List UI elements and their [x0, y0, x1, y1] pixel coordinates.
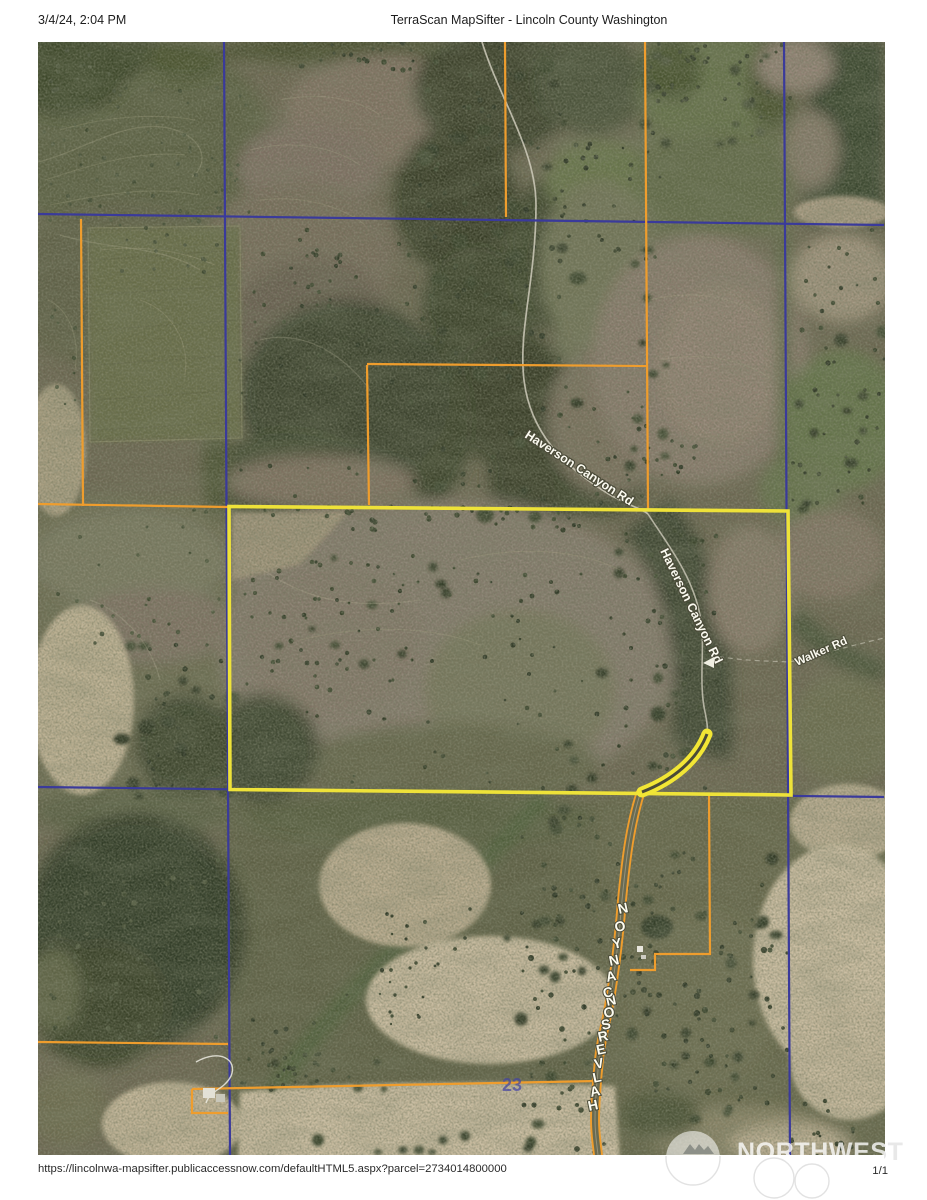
- svg-text:1/1: 1/1: [872, 1165, 888, 1177]
- svg-text:3/4/24, 2:04 PM: 3/4/24, 2:04 PM: [38, 13, 126, 27]
- svg-text:https://lincolnwa-mapsifter.pu: https://lincolnwa-mapsifter.publicaccess…: [38, 1163, 507, 1175]
- svg-text:TerraScan MapSifter - Lincoln: TerraScan MapSifter - Lincoln County Was…: [391, 13, 668, 27]
- svg-text:23: 23: [502, 1075, 522, 1095]
